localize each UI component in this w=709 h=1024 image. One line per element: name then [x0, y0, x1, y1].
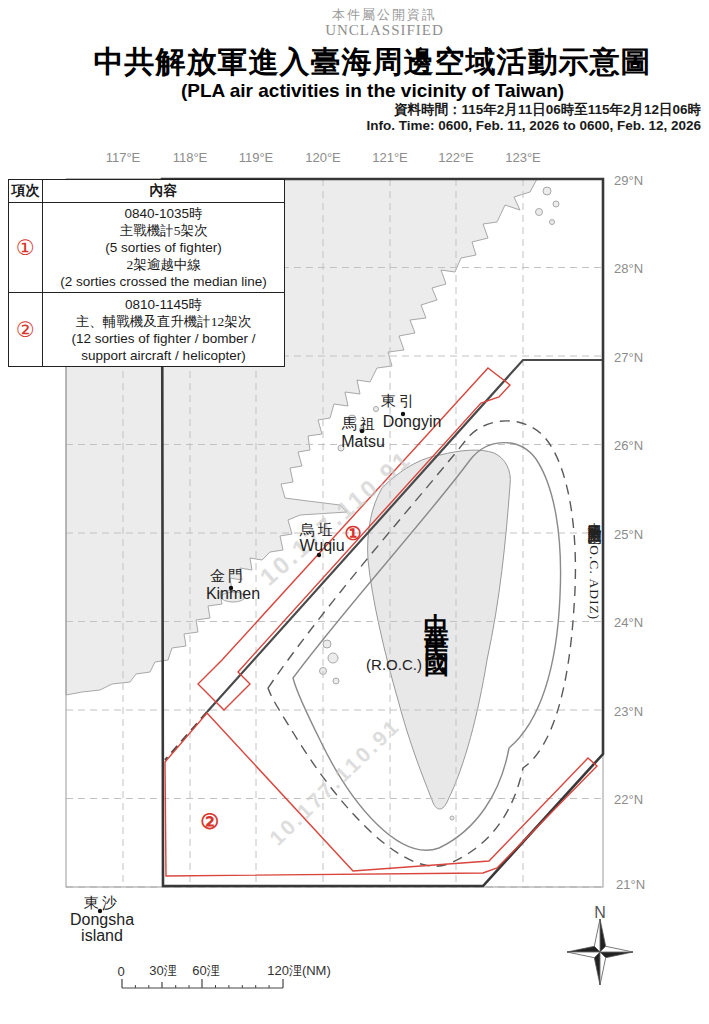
- place-kinmen-zh: 金門: [210, 567, 246, 586]
- compass-rose-icon: [567, 919, 633, 985]
- legend-row-2: ② 0810-1145時 主、輔戰機及直升機計12架次 (12 sorties …: [9, 293, 284, 366]
- lon-label-122e: 122°E: [438, 150, 474, 165]
- legend-row-1-line: 2架逾越中線: [126, 256, 200, 273]
- scale-label-60: 60浬: [192, 962, 219, 980]
- median-line-dashed-extension: [165, 712, 207, 760]
- legend-row-2-line: (12 sorties of fighter / bomber /: [72, 330, 256, 347]
- scale-label-30: 30浬: [149, 962, 176, 980]
- lon-label-123e: 123°E: [505, 150, 541, 165]
- classification-label: UNCLASSIFIED: [30, 22, 709, 39]
- legend-row-2-line: 主、輔戰機及直升機計12架次: [76, 313, 252, 330]
- lat-label-28n: 28°N: [614, 261, 643, 276]
- lat-label-22n: 22°N: [614, 792, 643, 807]
- lat-label-25n: 25°N: [614, 527, 643, 542]
- lat-label-29n: 29°N: [614, 173, 643, 188]
- lat-label-21n: 21°N: [616, 877, 645, 892]
- legend-row-1-line: 主戰機計5架次: [120, 222, 208, 239]
- legend-header-row: 項次 內容: [9, 180, 284, 203]
- lat-label-26n: 26°N: [614, 438, 643, 453]
- place-matsu-zh: 馬祖: [342, 415, 378, 434]
- scale-label-0: 0: [117, 964, 124, 979]
- legend-header-content: 內容: [43, 180, 284, 202]
- lat-label-23n: 23°N: [614, 704, 643, 719]
- place-kinmen-en: Kinmen: [206, 585, 260, 603]
- lon-label-121e: 121°E: [372, 150, 408, 165]
- page: { "header": { "public_notice": "本件屬公開資訊"…: [0, 0, 709, 1024]
- activity-legend-table: 項次 內容 ① 0840-1035時 主戰機計5架次 (5 sorties of…: [8, 179, 285, 367]
- legend-row-1: ① 0840-1035時 主戰機計5架次 (5 sorties of fight…: [9, 203, 284, 293]
- legend-row-1-line: (5 sorties of fighter): [105, 239, 221, 256]
- legend-row-2-line: support aircraft / helicopter): [81, 347, 245, 364]
- legend-row-2-id: ②: [9, 293, 43, 366]
- lon-label-120e: 120°E: [305, 150, 341, 165]
- lat-label-24n: 24°N: [614, 615, 643, 630]
- taiwan-roc-en-label: (R.O.C.): [366, 656, 422, 673]
- scale-bar: [122, 979, 283, 988]
- place-dongsha-island-en: island: [81, 927, 123, 945]
- legend-row-1-line: 0840-1035時: [124, 205, 202, 222]
- lon-label-118e: 118°E: [173, 150, 208, 165]
- taiwan-roc-vertical-label: 中華民國: [420, 592, 453, 648]
- info-time-zh: 資料時間：115年2月11日06時至115年2月12日06時: [394, 101, 701, 119]
- adiz-vertical-label: 中華民國防空識別區 (R.O.C. ADIZ): [585, 512, 603, 842]
- lon-label-117e: 117°E: [106, 150, 141, 165]
- legend-row-2-line: 0810-1145時: [125, 296, 202, 313]
- place-dongyin-zh: 東引: [381, 392, 417, 411]
- area1-marker: ①: [344, 522, 361, 545]
- scale-label-120: 120浬(NM): [267, 962, 331, 980]
- legend-header-item: 項次: [9, 180, 43, 202]
- place-matsu-en: Matsu: [341, 433, 385, 451]
- place-wuqiu-en: Wuqiu: [299, 537, 344, 555]
- lon-label-119e: 119°E: [239, 150, 274, 165]
- legend-row-1-id: ①: [9, 203, 43, 292]
- legend-row-1-line: (2 sorties crossed the median line): [60, 273, 266, 290]
- area2-marker: ②: [201, 810, 220, 834]
- page-title-en: (PLA air activities in the vicinity of T…: [18, 80, 709, 102]
- page-title-zh: 中共解放軍進入臺海周邊空域活動示意圖: [18, 42, 709, 83]
- place-dongsha-zh: 東沙: [84, 894, 120, 913]
- lat-label-27n: 27°N: [614, 350, 643, 365]
- compass-north-label: N: [594, 904, 606, 922]
- place-dongyin-en: Dongyin: [383, 413, 442, 431]
- info-time-en: Info. Time: 0600, Feb. 11, 2026 to 0600,…: [367, 118, 701, 133]
